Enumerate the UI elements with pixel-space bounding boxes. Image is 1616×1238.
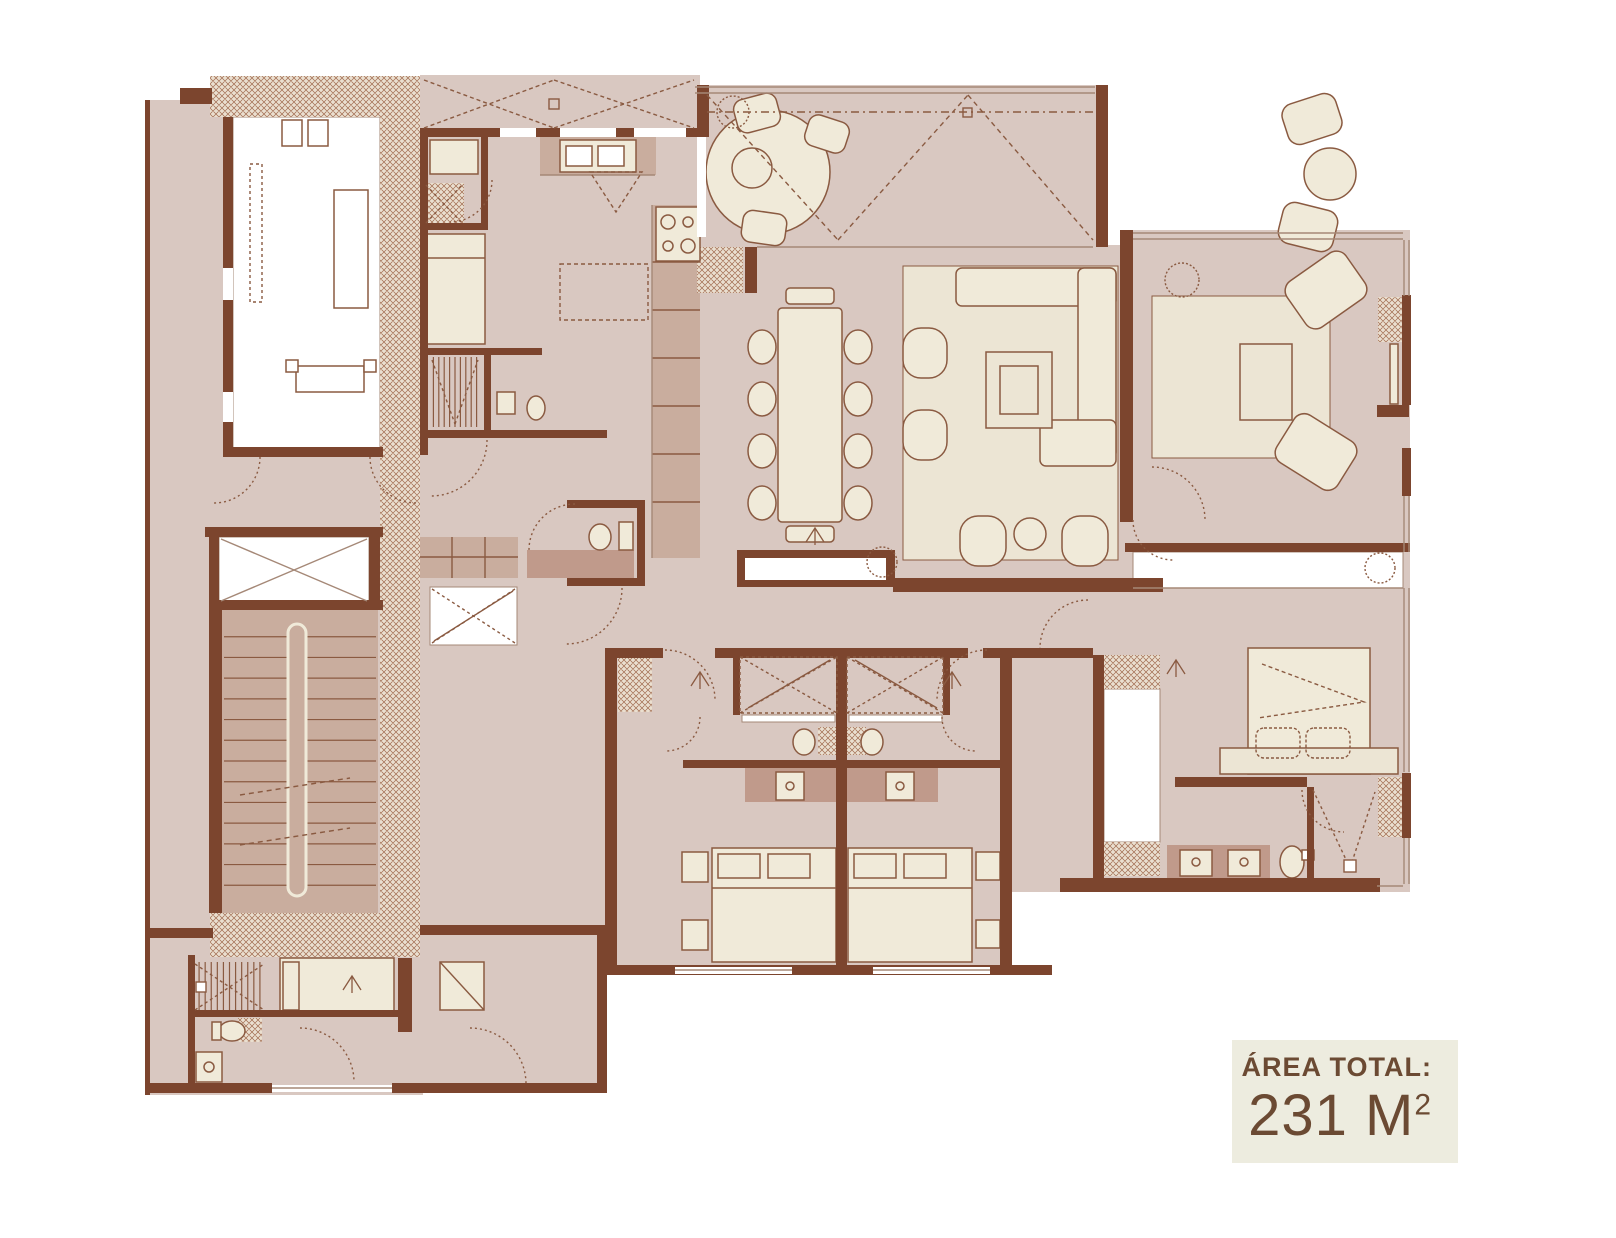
plan-shape: [697, 247, 743, 293]
area-total-label: ÁREA TOTAL: 231 M2: [1232, 1040, 1458, 1163]
area-total-value: 231 M2: [1248, 1083, 1432, 1150]
dining-chair: [844, 330, 872, 364]
terrace-chair: [1279, 90, 1345, 147]
plan-shape: [683, 760, 836, 768]
plan-shape: [847, 760, 1000, 768]
foyer-console: [334, 190, 368, 308]
plan-shape: [205, 527, 383, 537]
plan-shape: [180, 88, 212, 104]
dining-chair: [844, 382, 872, 416]
dining-chair: [748, 382, 776, 416]
powder-sink: [619, 522, 633, 550]
dining-chair: [748, 330, 776, 364]
master-sink: [1228, 850, 1260, 876]
suite2-sink: [886, 772, 914, 800]
plan-shape: [1402, 448, 1411, 496]
sideboard: [1390, 344, 1398, 404]
plan-shape: [1012, 648, 1093, 658]
plan-shape: [566, 146, 592, 166]
closet-slider: [849, 715, 942, 722]
plan-shape: [733, 655, 740, 715]
hall-planter: [745, 558, 886, 580]
plan-shape: [1175, 777, 1307, 787]
coffee-table: [986, 352, 1052, 428]
plan-shape: [745, 247, 757, 293]
plan-shape: [223, 447, 383, 457]
plan-shape: [212, 1022, 221, 1040]
plan-shape: [1378, 297, 1402, 342]
window: [634, 128, 686, 137]
nightstand: [682, 920, 708, 950]
plan-shape: [398, 958, 412, 1032]
armchair: [1062, 516, 1108, 566]
armchair: [903, 410, 947, 460]
plan-shape: [618, 653, 652, 712]
foyer-cabinet: [282, 120, 302, 146]
closet-slider: [742, 715, 835, 722]
nightstand: [976, 920, 1000, 948]
armchair: [903, 328, 947, 378]
shower-drain: [1344, 860, 1356, 872]
den-planter-band: [1133, 552, 1403, 588]
window: [697, 137, 706, 237]
suite2-toilet: [861, 729, 883, 755]
plan-shape: [209, 600, 383, 610]
plan-shape: [380, 455, 420, 913]
plan-shape: [1307, 787, 1314, 883]
plan-shape: [1104, 655, 1160, 689]
bl-toilet: [219, 1021, 245, 1041]
area-total-title: ÁREA TOTAL:: [1242, 1053, 1432, 1083]
window: [500, 128, 536, 137]
plan-shape: [392, 1083, 607, 1093]
master-corridor-floor: [1012, 648, 1093, 892]
dining-bench: [786, 288, 834, 304]
dining-bench: [786, 526, 834, 542]
plan-shape: [1093, 655, 1104, 878]
nightstand: [976, 852, 1000, 880]
window: [560, 128, 616, 137]
plan-shape: [145, 100, 150, 1095]
plan-shape: [637, 500, 645, 586]
plan-shape: [1377, 405, 1409, 417]
plan-shape: [420, 137, 428, 455]
maid-dresser: [430, 140, 478, 174]
plan-shape: [145, 928, 213, 938]
master-toilet: [1280, 846, 1304, 878]
master-sink: [1180, 850, 1212, 876]
plan-shape: [210, 913, 420, 957]
nightstand: [682, 852, 708, 882]
dining-chair: [748, 434, 776, 468]
structural-wall: [210, 76, 420, 117]
plan-shape: [209, 610, 222, 913]
plan-shape: [598, 146, 624, 166]
plan-shape: [420, 348, 542, 355]
plan-shape: [836, 648, 847, 975]
plan-shape: [380, 117, 420, 455]
plan-shape: [1000, 648, 1012, 975]
master-closet: [1104, 689, 1160, 842]
stair-rail: [288, 624, 306, 896]
maid-bed: [427, 234, 485, 344]
plan-shape: [286, 360, 298, 372]
stove: [656, 207, 700, 261]
powder-tile: [527, 550, 634, 578]
plan-shape: [188, 955, 195, 1087]
plan-shape: [420, 430, 607, 438]
suite1-toilet: [793, 729, 815, 755]
plan-shape: [484, 352, 491, 434]
dining-chair: [844, 434, 872, 468]
foyer-cabinet: [308, 120, 328, 146]
window: [223, 392, 233, 422]
plan-shape: [420, 223, 488, 230]
plan-shape: [420, 925, 600, 935]
plan-shape: [818, 727, 838, 755]
plan-shape: [567, 578, 645, 586]
armchair: [960, 516, 1006, 566]
wc-sink: [497, 392, 515, 414]
plan-shape: [597, 925, 607, 1093]
plan-shape: [567, 500, 645, 508]
bed1: [712, 848, 836, 962]
plan-shape: [1120, 230, 1133, 522]
powder-toilet: [589, 524, 611, 550]
shower-drain: [196, 982, 206, 992]
master-bench: [1220, 748, 1398, 774]
bl-bed: [280, 958, 394, 1014]
window: [223, 268, 233, 300]
plan-shape: [145, 1083, 272, 1093]
dining-chair: [748, 486, 776, 520]
plan-shape: [369, 537, 380, 610]
suite1-sink: [776, 772, 804, 800]
plan-shape: [1060, 878, 1380, 892]
dining-chair: [844, 486, 872, 520]
plan-shape: [481, 137, 488, 230]
side-table: [1014, 518, 1046, 550]
terrace-table: [1304, 148, 1356, 200]
wc-toilet: [527, 396, 545, 420]
bed2: [848, 848, 972, 962]
plan-shape: [1096, 85, 1108, 247]
plan-shape: [893, 578, 1163, 592]
plan-shape: [1402, 773, 1411, 838]
plan-shape: [1104, 842, 1160, 876]
plan-shape: [188, 1010, 412, 1017]
plan-shape: [1378, 777, 1402, 837]
dining-table: [778, 308, 842, 522]
floor-plan-page: ÁREA TOTAL: 231 M2: [0, 0, 1616, 1238]
plan-shape: [1125, 543, 1410, 552]
terrace-daybed-table: [732, 148, 772, 188]
plan-shape: [1402, 295, 1411, 405]
bl-sink: [196, 1052, 222, 1082]
plan-shape: [364, 360, 376, 372]
terrace-chair: [740, 209, 788, 247]
foyer-table: [296, 366, 364, 392]
plan-shape: [209, 537, 219, 610]
corridor-floor: [420, 648, 607, 930]
